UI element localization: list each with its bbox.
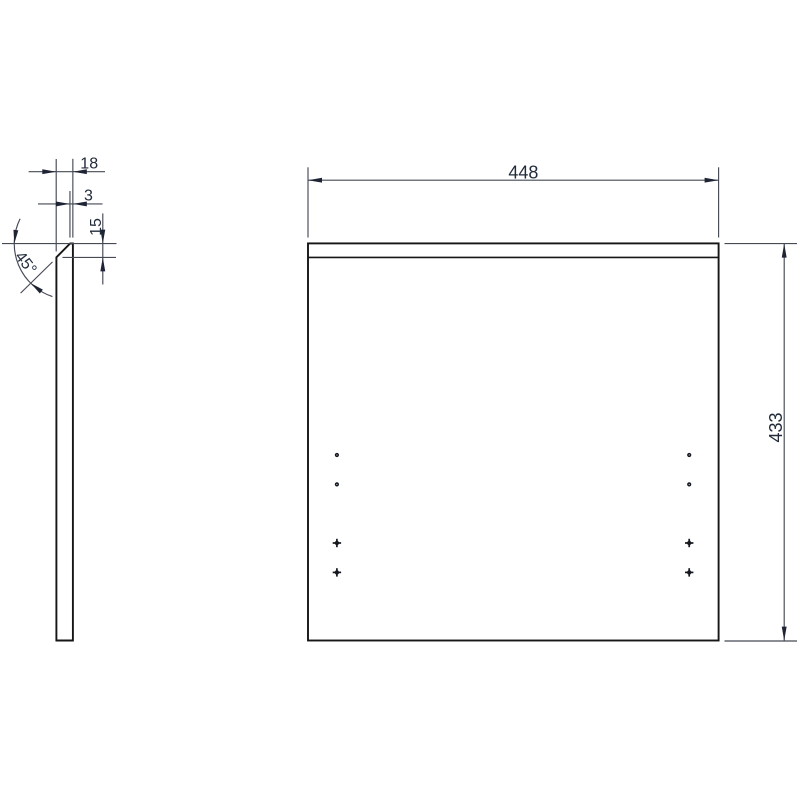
svg-text:433: 433 [766, 412, 786, 442]
svg-text:448: 448 [508, 162, 538, 182]
svg-text:15: 15 [88, 218, 105, 236]
svg-text:3: 3 [84, 187, 93, 204]
svg-text:18: 18 [80, 156, 98, 173]
